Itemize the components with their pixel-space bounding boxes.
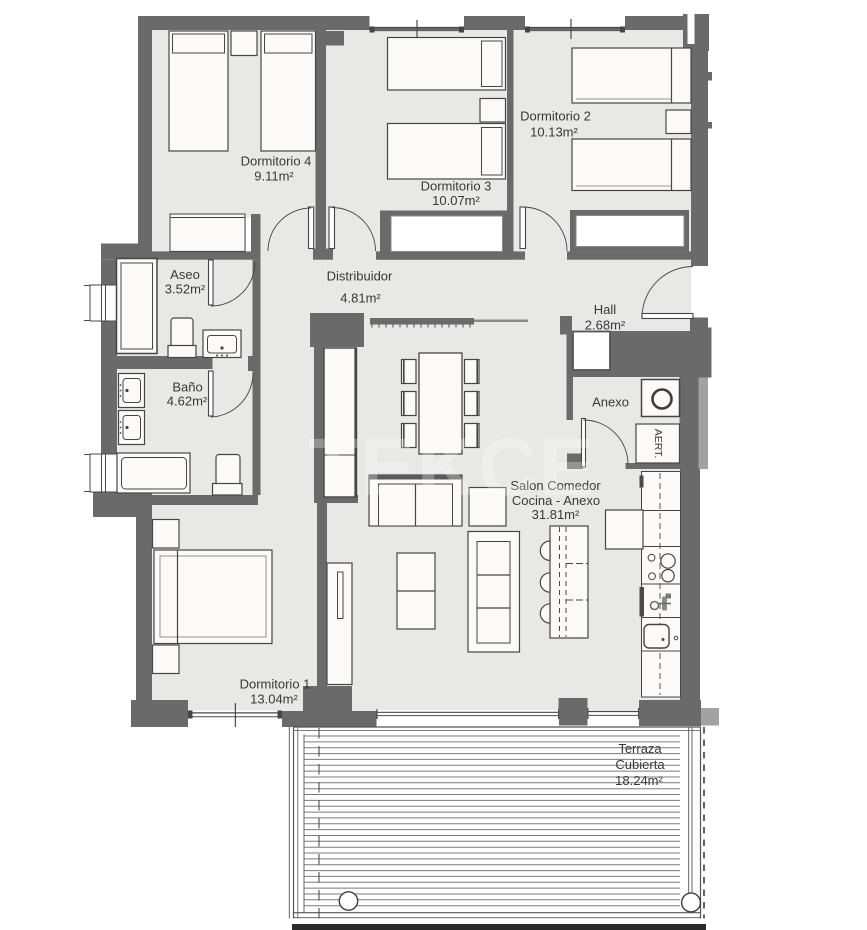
svg-text:10.07m²: 10.07m²	[432, 193, 480, 208]
svg-text:18.24m²: 18.24m²	[615, 773, 663, 788]
svg-text:Cubierta: Cubierta	[615, 757, 665, 772]
svg-text:10.13m²: 10.13m²	[530, 125, 578, 140]
svg-text:Aseo: Aseo	[170, 267, 200, 282]
svg-text:2.68m²: 2.68m²	[585, 318, 626, 333]
svg-text:13.04m²: 13.04m²	[250, 692, 298, 707]
svg-text:Anexo: Anexo	[592, 395, 629, 410]
svg-text:Dormitorio 1: Dormitorio 1	[240, 677, 311, 692]
svg-text:Hall: Hall	[594, 302, 617, 317]
svg-text:4.81m²: 4.81m²	[340, 291, 381, 306]
svg-text:Dormitorio 2: Dormitorio 2	[520, 109, 591, 124]
svg-text:Distribuidor: Distribuidor	[327, 269, 393, 284]
svg-text:4.62m²: 4.62m²	[167, 394, 208, 409]
svg-text:Baño: Baño	[172, 380, 202, 395]
svg-text:9.11m²: 9.11m²	[254, 169, 294, 184]
svg-text:AERT.: AERT.	[652, 429, 664, 459]
svg-text:3.52m²: 3.52m²	[165, 282, 206, 297]
svg-text:Dormitorio 4: Dormitorio 4	[241, 154, 312, 169]
svg-text:TEKCE: TEKCE	[308, 422, 596, 513]
svg-text:Terraza: Terraza	[618, 741, 662, 756]
svg-text:Dormitorio 3: Dormitorio 3	[421, 179, 492, 194]
